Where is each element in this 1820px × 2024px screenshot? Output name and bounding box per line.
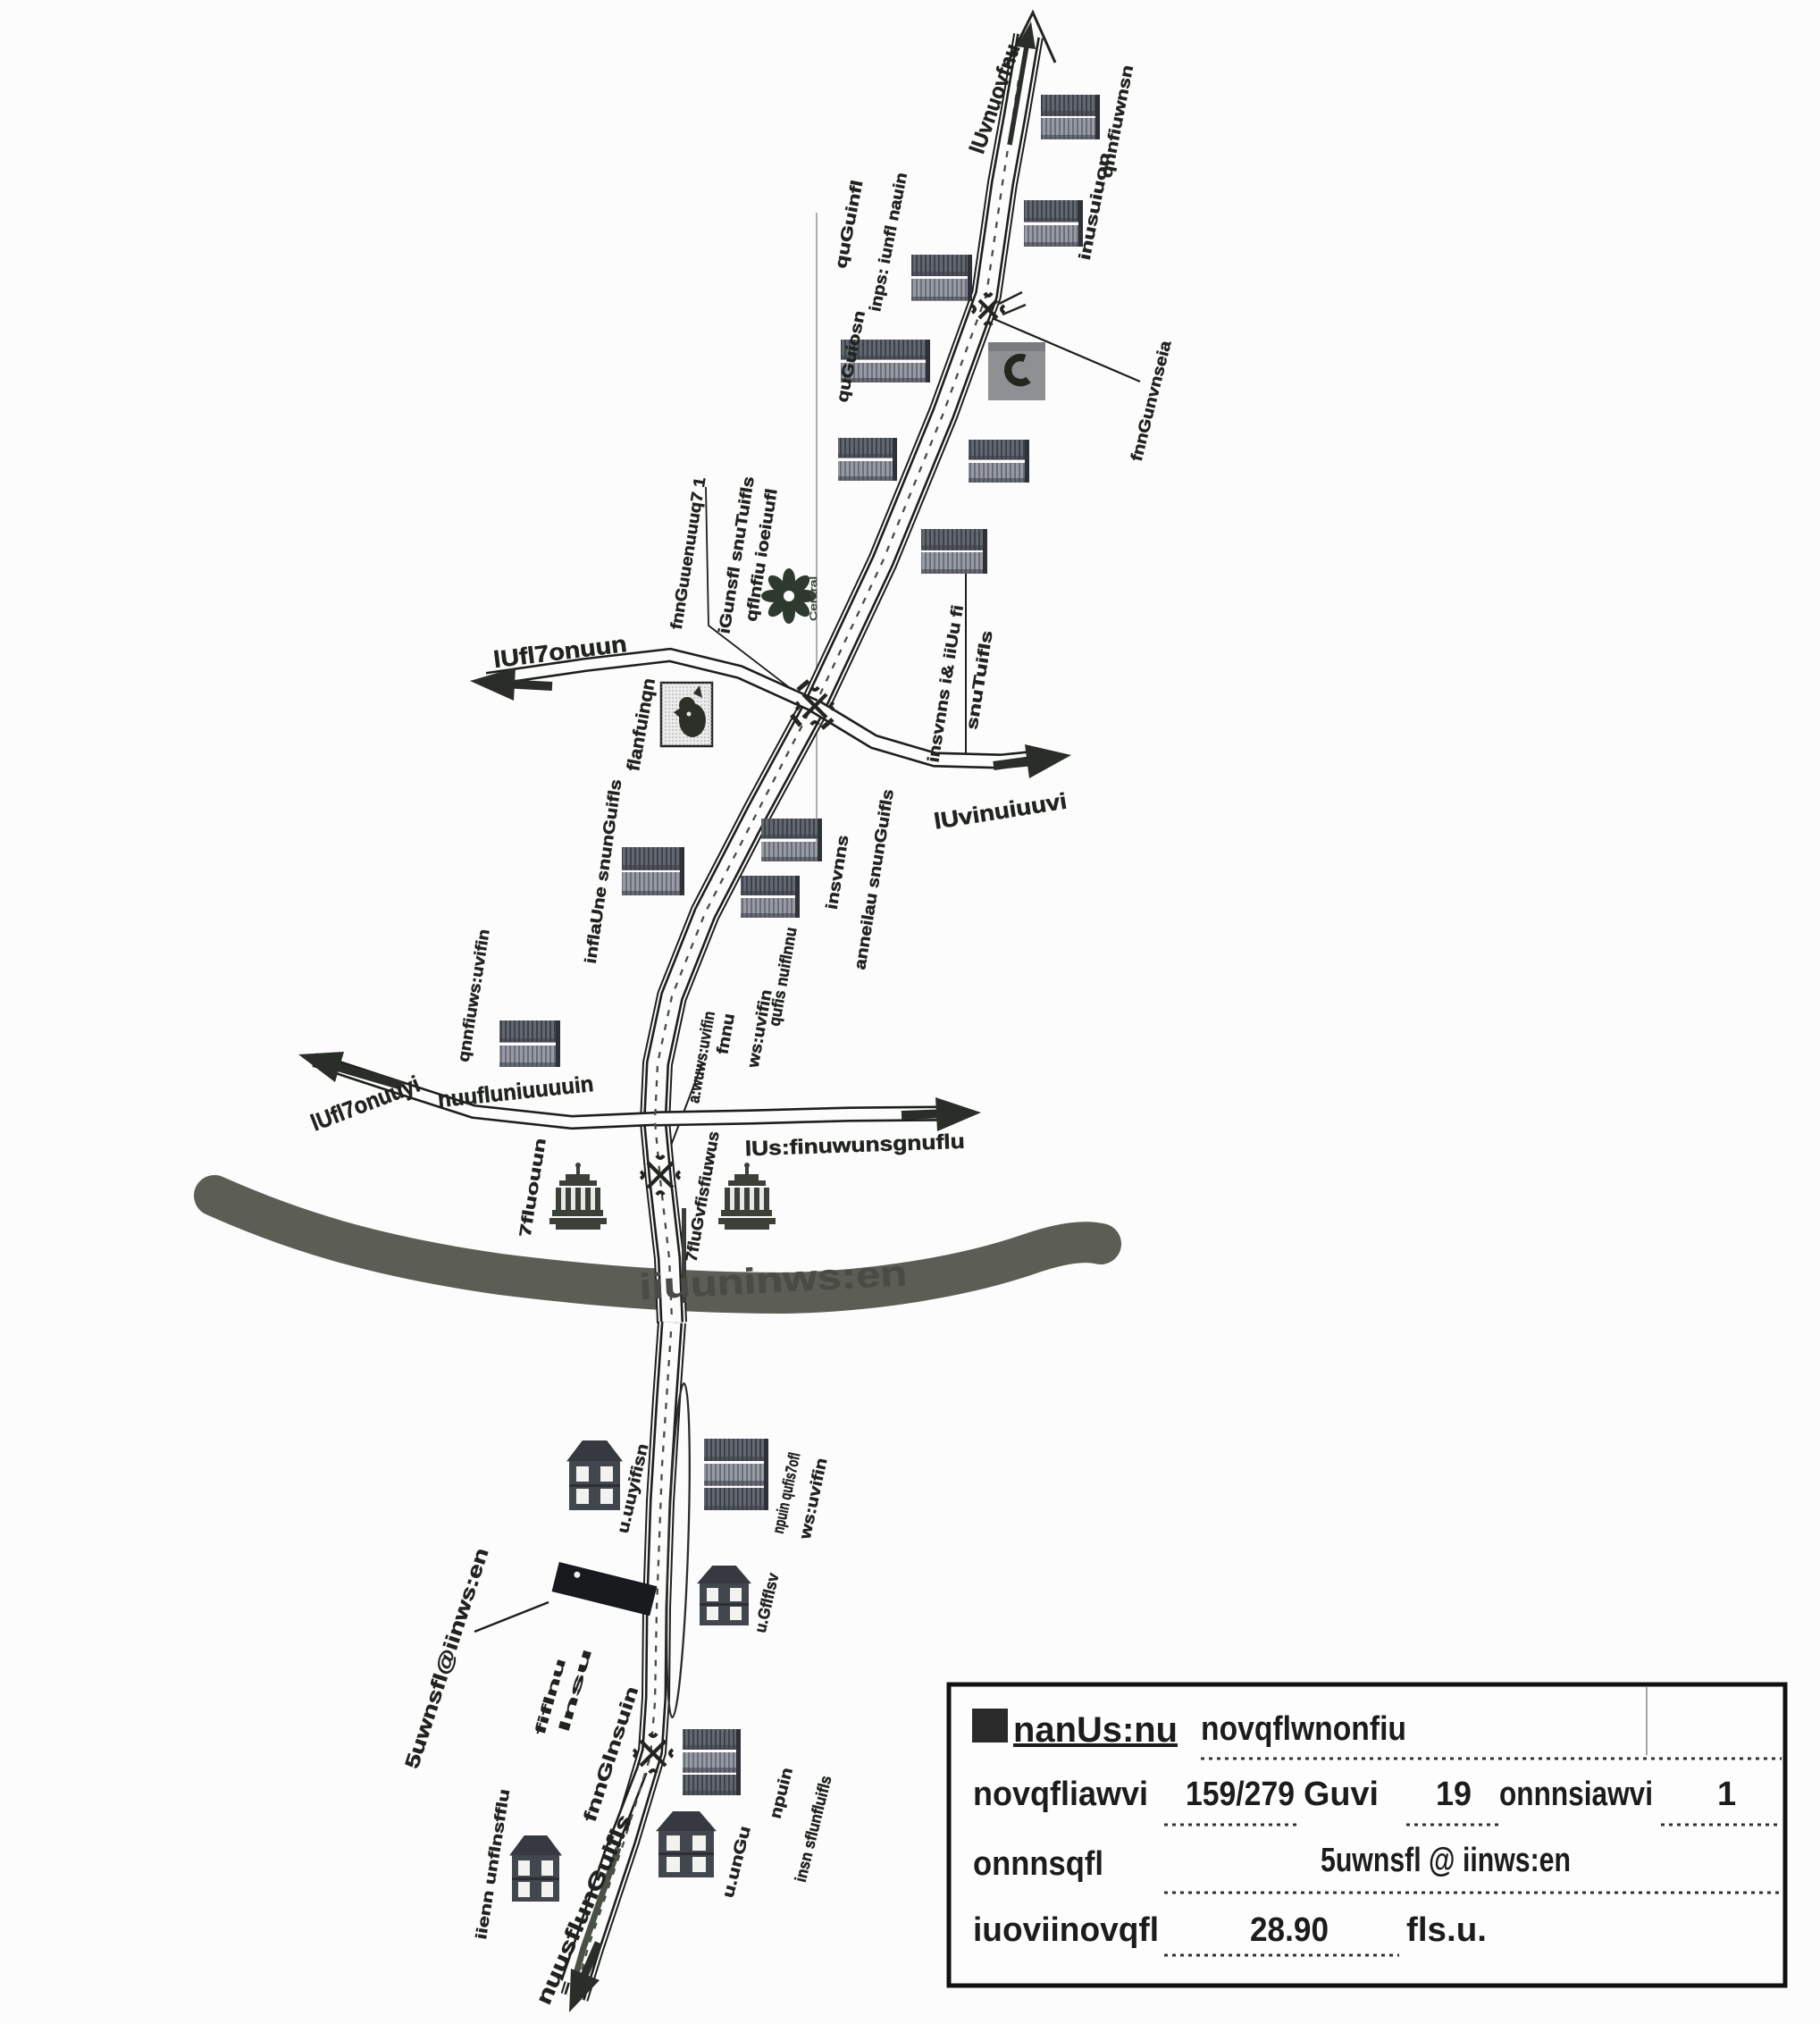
svg-text:iuoviinovqfl: iuoviinovqfl: [973, 1911, 1159, 1949]
svg-text:5uwnsfl @ iinws:en: 5uwnsfl @ iinws:en: [1321, 1842, 1571, 1879]
svg-text:onnnsiawvi: onnnsiawvi: [1499, 1776, 1653, 1813]
svg-text:novqfliawvi: novqfliawvi: [973, 1776, 1148, 1813]
svg-text:fls.u.: fls.u.: [1406, 1911, 1487, 1949]
svg-text:nanUs:nu: nanUs:nu: [1013, 1710, 1178, 1750]
svg-text:novqflwnonfiu: novqflwnonfiu: [1201, 1710, 1406, 1748]
svg-text:1: 1: [1717, 1776, 1736, 1813]
svg-text:19: 19: [1436, 1776, 1472, 1813]
svg-text:Guvi: Guvi: [1304, 1776, 1379, 1813]
svg-text:onnnsqfl: onnnsqfl: [973, 1845, 1103, 1883]
svg-text:Central: Central: [809, 576, 819, 621]
svg-text:159/279: 159/279: [1186, 1776, 1295, 1813]
svg-text:28.90: 28.90: [1250, 1911, 1329, 1949]
